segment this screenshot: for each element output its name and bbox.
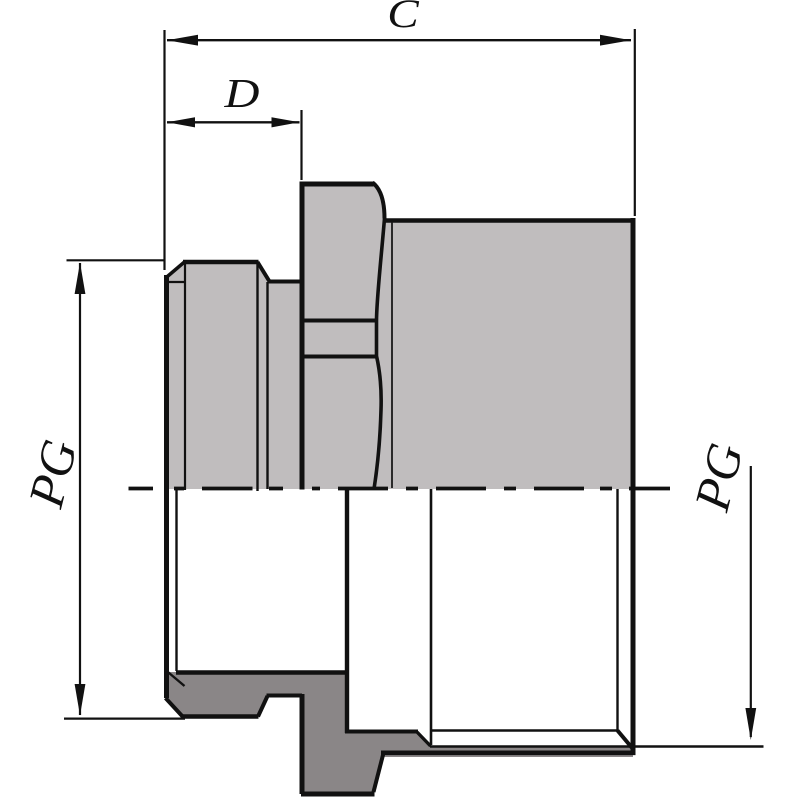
svg-text:C: C [387,0,419,36]
svg-text:D: D [223,70,259,116]
